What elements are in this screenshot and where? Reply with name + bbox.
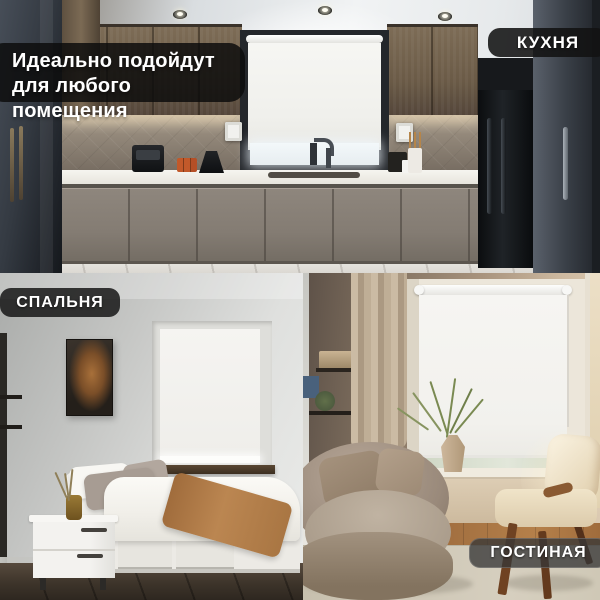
bedroom-label-pill: СПАЛЬНЯ xyxy=(0,288,120,317)
cabinet-handle-left xyxy=(10,128,14,202)
nightstand-leg xyxy=(40,578,46,590)
wall-shelf-lower xyxy=(309,411,351,415)
living-room-label: ГОСТИНАЯ xyxy=(490,544,586,562)
accent-armchair xyxy=(491,433,600,600)
kitchen-sink xyxy=(268,172,360,178)
bedroom-painting xyxy=(66,339,113,416)
bedroom-label: СПАЛЬНЯ xyxy=(16,294,104,312)
living-room-panel: ГОСТИНАЯ xyxy=(303,273,600,600)
ceiling-spotlight-icon xyxy=(173,10,187,19)
cabinet-above-fridge xyxy=(478,58,533,90)
cabinet-handle-left xyxy=(19,126,23,200)
kitchen-faucet-stem xyxy=(326,148,331,168)
tall-cabinet-left xyxy=(0,0,62,273)
nightstand xyxy=(33,522,115,578)
air-fryer xyxy=(132,145,164,172)
blind-pull-chain xyxy=(567,295,569,427)
kitchen-roller-blind xyxy=(248,43,381,150)
ceiling-spotlight-icon xyxy=(318,6,332,15)
shelf-plant xyxy=(315,391,335,411)
spice-jars xyxy=(177,158,197,172)
dried-plant xyxy=(398,378,483,440)
living-room-label-pill: ГОСТИНАЯ xyxy=(469,538,600,568)
cabinet-gloss-highlight xyxy=(40,0,53,273)
kitchen-faucet xyxy=(314,138,334,156)
headline-line-2: для любого помещения xyxy=(12,74,245,124)
kitchen-panel: Идеально подойдут для любого помещения К… xyxy=(0,0,600,273)
upper-wood-cabinets-right xyxy=(387,24,478,115)
wall-outlet-left xyxy=(225,122,242,141)
nightstand-handle xyxy=(77,554,103,558)
headline-box: Идеально подойдут для любого помещения xyxy=(0,43,245,102)
utensil-holder xyxy=(408,148,422,173)
product-collage: Идеально подойдут для любого помещения К… xyxy=(0,0,600,600)
kitchen-window xyxy=(240,30,389,171)
roller-blind-tube xyxy=(246,35,383,43)
nightstand-handle xyxy=(81,528,107,532)
black-fridge xyxy=(478,90,533,268)
bedroom-roller-blind xyxy=(160,329,260,456)
roller-tube-end-cap xyxy=(414,285,424,295)
kitchen-label-pill: КУХНЯ xyxy=(488,28,600,57)
kitchen-lower-cabinets xyxy=(62,188,478,264)
nightstand-leg xyxy=(100,578,106,590)
blind-light-gap xyxy=(160,456,260,463)
bedroom-panel: СПАЛЬНЯ xyxy=(0,273,303,600)
cabinet-handle-right xyxy=(563,127,568,200)
round-swivel-chair xyxy=(303,438,456,600)
fridge-handle xyxy=(501,118,506,214)
fridge-handle xyxy=(487,118,492,214)
shelf-radio xyxy=(319,351,355,369)
plant-stem xyxy=(412,392,442,432)
bedroom-left-wall-edge xyxy=(0,333,7,563)
headline-line-1: Идеально подойдут xyxy=(12,49,245,74)
chair-base xyxy=(303,532,453,600)
bedroom-window xyxy=(152,321,272,467)
ceiling-spotlight-icon xyxy=(438,12,452,21)
roller-tube-end-cap xyxy=(562,285,572,295)
bedroom-wall-shelf xyxy=(0,395,22,447)
nightstand-drawer-seam xyxy=(33,549,115,551)
roller-blind-tube xyxy=(417,285,569,295)
kitchen-label: КУХНЯ xyxy=(517,33,579,53)
